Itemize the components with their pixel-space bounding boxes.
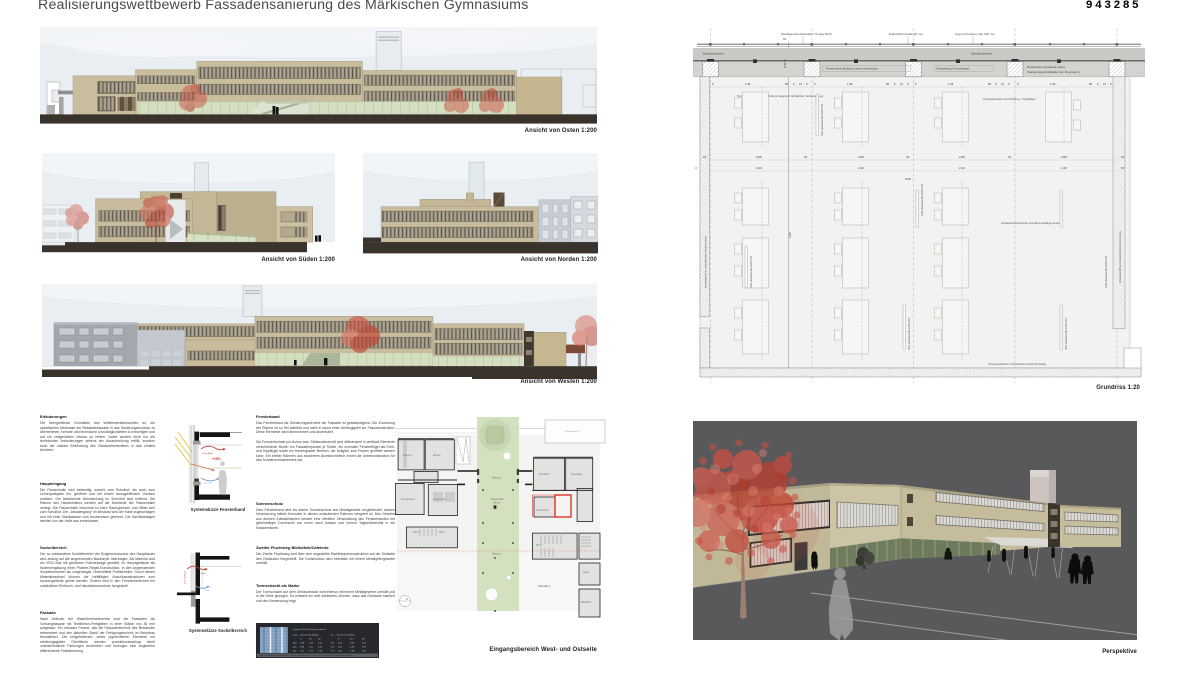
svg-text:Sonnenschutzwerte Metallgewebe: Sonnenschutzwerte Metallgewebe | Werte i…: [259, 654, 354, 657]
svg-text:Bibliothek: Bibliothek: [581, 601, 592, 604]
svg-text:21: 21: [1001, 82, 1004, 86]
svg-text:Klassenr.: Klassenr.: [403, 454, 413, 457]
svg-text:Wartung: Wartung: [492, 477, 501, 480]
svg-text:21: 21: [900, 82, 903, 86]
svg-text:Fensterbank Multiplex weiss be: Fensterbank Multiplex weiss beschichtet: [826, 67, 878, 71]
svg-text:Omega 1510 | Durchlssg. tech: Omega 1510 | Durchlssg. technisch: [293, 628, 327, 631]
svg-text:2,40: 2,40: [959, 166, 965, 170]
svg-text:Rolli-Linienleuchte 1/200 mm: Rolli-Linienleuchte 1/200 mm: [908, 318, 911, 350]
svg-text:31: 31: [906, 155, 910, 159]
svg-text:15: 15: [1121, 166, 1125, 170]
svg-text:N: N: [406, 597, 408, 601]
svg-text:2,08: 2,08: [1061, 155, 1067, 159]
svg-text:2,08: 2,08: [959, 155, 965, 159]
svg-text:Schulhof: Schulhof: [538, 584, 550, 588]
svg-text:warme Abluft: warme Abluft: [202, 452, 213, 455]
svg-text:Putzstellung Fensterflügel: Putzstellung Fensterflügel: [936, 67, 970, 71]
svg-text:8,45: 8,45: [905, 177, 911, 181]
svg-text:30°: 30°: [309, 639, 312, 641]
svg-text:WC D: WC D: [413, 532, 419, 534]
svg-text:2,40: 2,40: [756, 166, 762, 170]
svg-text:1,35: 1,35: [745, 82, 751, 86]
svg-text:WC D: WC D: [536, 545, 542, 547]
svg-text:1,35: 1,35: [948, 82, 954, 86]
svg-text:21: 21: [799, 82, 802, 86]
svg-text:16: 16: [1121, 155, 1125, 159]
svg-text:Brandschutzpaneel: Brandschutzpaneel: [703, 53, 724, 56]
svg-text:Abluft: Abluft: [201, 572, 206, 575]
svg-text:WC H: WC H: [439, 532, 445, 534]
svg-text:0°: 0°: [338, 639, 340, 641]
svg-text:33: 33: [783, 37, 786, 41]
svg-text:Pausenhalle: Pausenhalle: [491, 499, 504, 501]
svg-text:Kornspeicher: Kornspeicher: [401, 498, 415, 501]
svg-text:31: 31: [804, 155, 808, 159]
svg-text:Innenwand Putz mineralischer A: Innenwand Putz mineralischer Anstrich we…: [704, 235, 708, 288]
svg-text:Augenschrauben alle 300 mm: Augenschrauben alle 300 mm: [955, 32, 995, 36]
svg-text:Rolli-Linienleuchte 1/200 mm: Rolli-Linienleuchte 1/200 mm: [1105, 256, 1108, 288]
svg-text:60°: 60°: [362, 639, 365, 641]
svg-text:0°: 0°: [300, 639, 302, 641]
svg-text:Lüftungsfenster mit Schwing- /: Lüftungsfenster mit Schwing- / Kippflüge…: [983, 97, 1036, 101]
svg-text:2,08: 2,08: [858, 155, 864, 159]
svg-text:Lager: Lager: [583, 571, 589, 574]
svg-text:60°: 60°: [318, 639, 321, 641]
svg-text:Schulleiter: Schulleiter: [539, 473, 550, 476]
svg-text:Rolli-Linienleuchte 1/200 mm: Rolli-Linienleuchte 1/200 mm: [750, 256, 753, 288]
svg-text:16: 16: [703, 155, 707, 159]
svg-text:1,35: 1,35: [1050, 82, 1056, 86]
svg-text:65: 65: [886, 82, 889, 86]
svg-text:Innenwand/Putz mineralischer A: Innenwand/Putz mineralischer Anstrich we…: [1118, 230, 1122, 283]
svg-text:Rolli-Linienleuchte 1/200 mm: Rolli-Linienleuchte 1/200 mm: [821, 104, 824, 136]
svg-text:2,40: 2,40: [1061, 166, 1067, 170]
svg-text:6,88: 6,88: [788, 232, 792, 238]
svg-text:Metallgewebe Edelstahl 'Omega: Metallgewebe Edelstahl 'Omega 5010': [781, 32, 832, 36]
svg-text:Hausmeister: Hausmeister: [536, 509, 549, 512]
svg-text:Klassentrakt OG: Klassentrakt OG: [565, 430, 580, 433]
svg-text:Gipskartonlochdecke mit Dämmau: Gipskartonlochdecke mit Dämmauflage weis…: [1001, 221, 1060, 225]
svg-text:Deckenfries Gipskarton weiss: Deckenfries Gipskarton weiss: [1027, 65, 1066, 69]
svg-text:Edelstahlrundstab 26 mm: Edelstahlrundstab 26 mm: [889, 32, 924, 36]
svg-text:65: 65: [785, 82, 788, 86]
svg-text:+15%: +15%: [212, 457, 221, 461]
svg-text:4: 4: [695, 166, 697, 170]
svg-text:1,35: 1,35: [847, 82, 853, 86]
svg-text:2,40: 2,40: [858, 166, 864, 170]
svg-text:31: 31: [1008, 155, 1012, 159]
svg-text:Rolli-Linienleuchte 1/200 mm: Rolli-Linienleuchte 1/200 mm: [1065, 318, 1068, 350]
svg-text:Innenwand/Putz mineralischer A: Innenwand/Putz mineralischer Anstrich fa…: [988, 362, 1046, 366]
svg-text:Zuluft: Zuluft: [205, 589, 210, 592]
svg-text:30°: 30°: [350, 639, 353, 641]
svg-text:(Sanierungsschnittstelle zum I: (Sanierungsschnittstelle zum Innenraum): [1027, 70, 1080, 74]
svg-text:65: 65: [1089, 82, 1092, 86]
svg-text:Treppenhaus: Treppenhaus: [433, 498, 447, 501]
svg-text:Werken: Werken: [433, 454, 442, 457]
svg-text:6,30 11: 6,30 11: [783, 59, 787, 68]
svg-text:Sockel Profilglas: Sockel Profilglas: [185, 571, 187, 584]
svg-text:Fc — Sonnenschutzfaktor: Fc — Sonnenschutzfaktor: [331, 634, 355, 637]
svg-text:21: 21: [1103, 82, 1106, 86]
svg-text:400 qm: 400 qm: [493, 503, 501, 505]
svg-text:Sandwichpaneel: Sandwichpaneel: [971, 52, 993, 56]
svg-text:g-tot — Sonnenschutzfaktor: g-tot — Sonnenschutzfaktor: [293, 634, 319, 637]
svg-text:Wartung: Wartung: [492, 553, 501, 556]
svg-text:Zuluft kühl: Zuluft kühl: [203, 482, 212, 485]
svg-text:2,08: 2,08: [756, 155, 762, 159]
svg-text:Rolli-Linienleuchte 1/200 mm: Rolli-Linienleuchte 1/200 mm: [921, 184, 924, 216]
svg-text:65: 65: [988, 82, 991, 86]
svg-text:Sekretariat: Sekretariat: [571, 473, 582, 476]
